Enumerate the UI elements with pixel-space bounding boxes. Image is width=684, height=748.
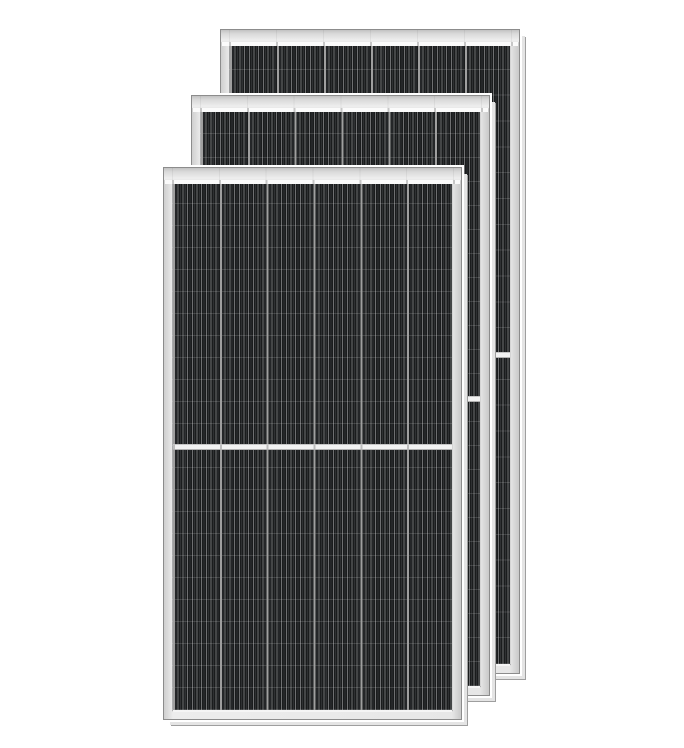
solar-panel-front [163, 167, 462, 720]
half-cell-center-gap [173, 444, 452, 450]
product-image-stage [0, 0, 684, 748]
solar-cell-grid [172, 184, 453, 712]
